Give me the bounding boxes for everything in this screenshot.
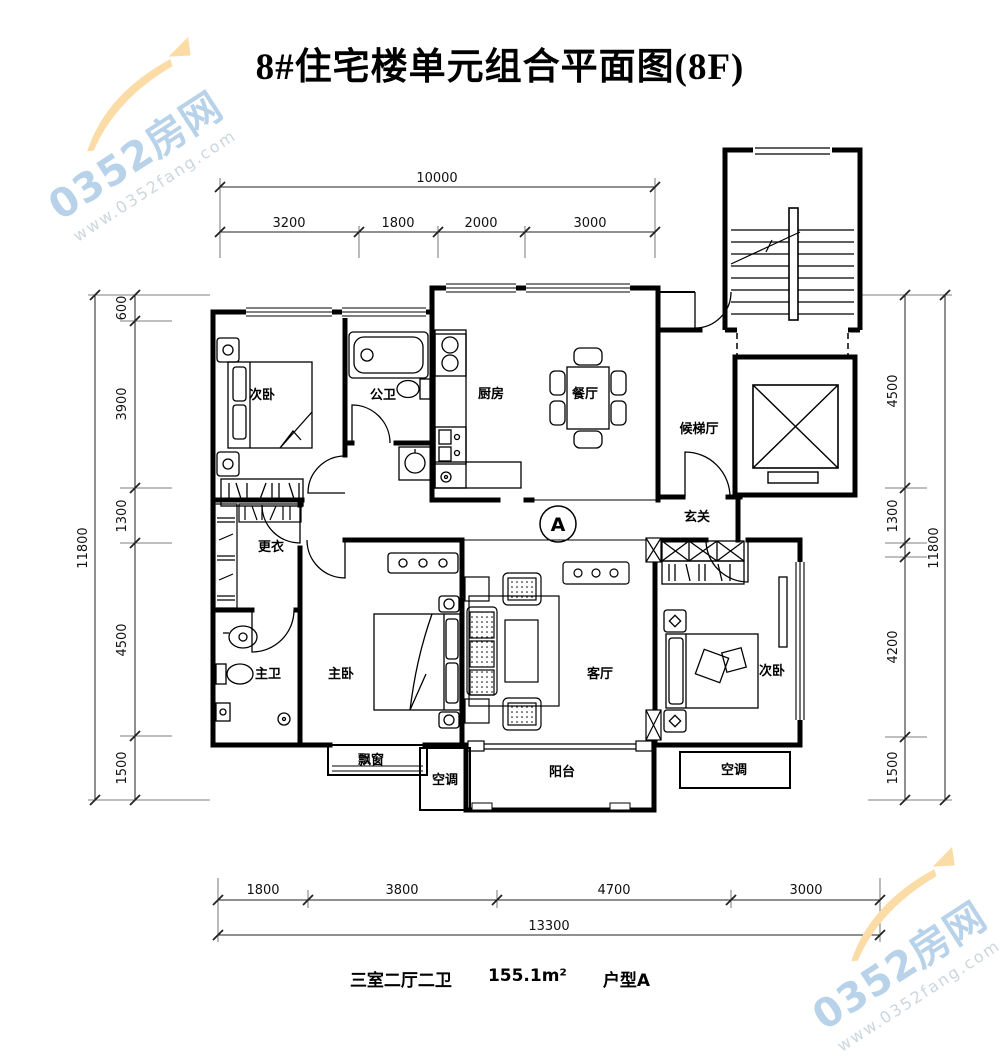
dim-right-seg-3: 1500 [886,751,901,784]
dim-top-seg-1: 1800 [381,216,414,231]
label-foyer: 玄关 [684,509,710,525]
dim-right-total: 11800 [927,527,942,568]
section-marker: A [540,506,576,542]
floor-plan-svg: 10000 3200 1800 2000 3000 600 3900 1300 … [0,0,1000,1060]
dim-left-seg-1: 3900 [115,387,130,420]
caption: 三室二厅二卫 155.1m² 户型A [0,966,1000,991]
dim-right-seg-0: 4500 [886,374,901,407]
furniture-bedroom-right [662,541,787,732]
label-bedroom-top-left: 次卧 [249,387,275,403]
furniture-master-bedroom [374,553,460,728]
dim-top-seg-0: 3200 [272,216,305,231]
furniture-living [465,562,629,730]
dim-bottom-seg-1: 3800 [385,883,418,898]
windows [246,282,806,810]
dim-left-seg-0: 600 [115,296,130,321]
furniture-bedroom-top-left [217,338,312,506]
dim-top-seg-2: 2000 [464,216,497,231]
label-balcony: 阳台 [549,764,575,780]
floor-plan-page: 8#住宅楼单元组合平面图(8F) 0352房网 www.0352fang.com [0,0,1000,1060]
label-elevator-hall: 候梯厅 [679,421,718,437]
dim-left-seg-2: 1300 [115,499,130,532]
dim-left-total: 11800 [76,527,91,568]
label-dining: 餐厅 [571,386,598,402]
dim-left-seg-3: 4500 [115,623,130,656]
label-ac-left: 空调 [432,772,458,788]
caption-area: 155.1m² [488,966,567,991]
dim-left-seg-4: 1500 [115,751,130,784]
furniture-dressing [215,504,301,608]
elevator [735,357,855,495]
label-kitchen: 厨房 [478,386,504,402]
section-marker-letter: A [551,514,566,536]
stairwell [725,145,860,362]
caption-layout: 三室二厅二卫 [350,966,452,991]
label-bedroom-master: 主卧 [328,666,354,682]
furniture-kitchen [435,330,521,488]
label-bath-master: 主卫 [255,666,281,682]
dim-bottom-seg-3: 3000 [789,883,822,898]
dim-top-total: 10000 [416,171,457,186]
dim-bottom-seg-2: 4700 [597,883,630,898]
dim-right-seg-1: 1300 [886,499,901,532]
caption-unit-type: 户型A [603,966,650,991]
dim-right-seg-2: 4200 [886,630,901,663]
label-living: 客厅 [587,666,613,682]
walls [213,288,800,810]
label-dressing: 更衣 [258,539,284,555]
label-ac-right: 空调 [721,762,747,778]
label-bedroom-right: 次卧 [759,663,785,679]
label-bath-public: 公卫 [370,388,396,403]
doors [252,292,748,652]
dim-top-seg-3: 3000 [573,216,606,231]
label-bay-window: 飘窗 [358,752,384,768]
dim-bottom-seg-0: 1800 [246,883,279,898]
dim-bottom-total: 13300 [528,919,569,934]
